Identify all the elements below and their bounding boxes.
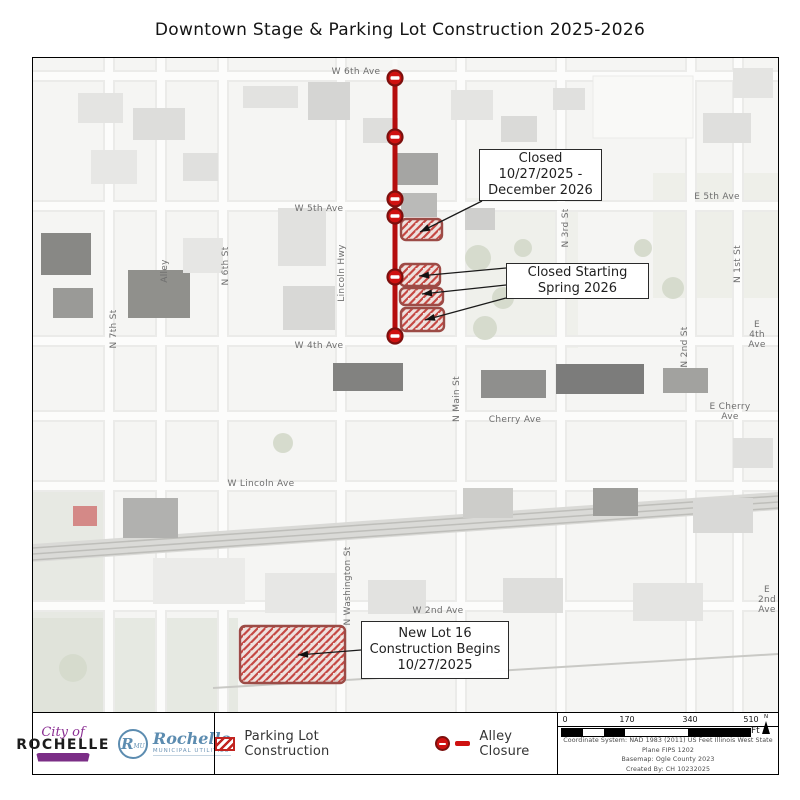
map-overlay bbox=[33, 58, 778, 713]
no-entry-icon bbox=[435, 736, 450, 751]
legend-panel: Parking Lot Construction Alley Closure bbox=[214, 713, 557, 774]
closure-line-icon bbox=[455, 741, 470, 746]
no-entry-icon bbox=[388, 270, 403, 285]
scale-bar-segments bbox=[561, 728, 751, 737]
rmu-initial: R bbox=[121, 735, 133, 753]
parking-hatch-swatch-icon bbox=[215, 737, 235, 751]
city-logo-name: ROCHELLE bbox=[16, 738, 110, 752]
no-entry-icon bbox=[388, 209, 403, 224]
scale-bar: Ft N 0170340510 bbox=[558, 713, 778, 727]
scale-tick-label: 340 bbox=[682, 715, 697, 724]
city-of-rochelle-logo: City of ROCHELLE bbox=[16, 726, 110, 762]
scale-tick-label: 0 bbox=[562, 715, 567, 724]
parking-lot-construction-area bbox=[401, 219, 442, 240]
scale-panel: Ft N 0170340510 Projection: Transverse M… bbox=[557, 713, 778, 774]
legend-label: Alley Closure bbox=[479, 729, 557, 759]
north-label: N bbox=[759, 715, 773, 720]
legend-item-parking: Parking Lot Construction bbox=[215, 729, 393, 759]
no-entry-icon bbox=[388, 192, 403, 207]
map-footer: City of ROCHELLE R MU Rochelle MUNICIPAL… bbox=[32, 712, 779, 775]
construction-map: W 6th AveW 5th AveE 5th AveW 4th AveE 4t… bbox=[32, 57, 779, 714]
credit-line: Created By: CH 10232025 bbox=[558, 765, 778, 774]
legend-item-alley-closure: Alley Closure bbox=[435, 729, 557, 759]
map-document: Downtown Stage & Parking Lot Constructio… bbox=[0, 0, 800, 800]
city-logo-ribbon bbox=[36, 753, 90, 762]
rmu-monogram-icon: R MU bbox=[118, 729, 148, 759]
page-title: Downtown Stage & Parking Lot Constructio… bbox=[0, 20, 800, 40]
parking-lot-construction-area bbox=[401, 308, 444, 331]
logos-panel: City of ROCHELLE R MU Rochelle MUNICIPAL… bbox=[33, 713, 214, 774]
no-entry-icon bbox=[388, 329, 403, 344]
scale-tick-label: 510 bbox=[743, 715, 758, 724]
legend-label: Parking Lot Construction bbox=[244, 729, 393, 759]
credit-line: Coordinate System: NAD 1983 (2011) US Fe… bbox=[558, 736, 778, 755]
parking-lot-construction-area bbox=[240, 626, 345, 683]
no-entry-icon bbox=[388, 71, 403, 86]
scale-tick-label: 170 bbox=[619, 715, 634, 724]
parking-lot-construction-area bbox=[400, 288, 443, 305]
north-arrow-icon: N bbox=[759, 715, 773, 734]
credit-line: Basemap: Ogle County 2023 bbox=[558, 755, 778, 764]
no-entry-icon bbox=[388, 130, 403, 145]
rmu-sub-initials: MU bbox=[134, 743, 145, 750]
